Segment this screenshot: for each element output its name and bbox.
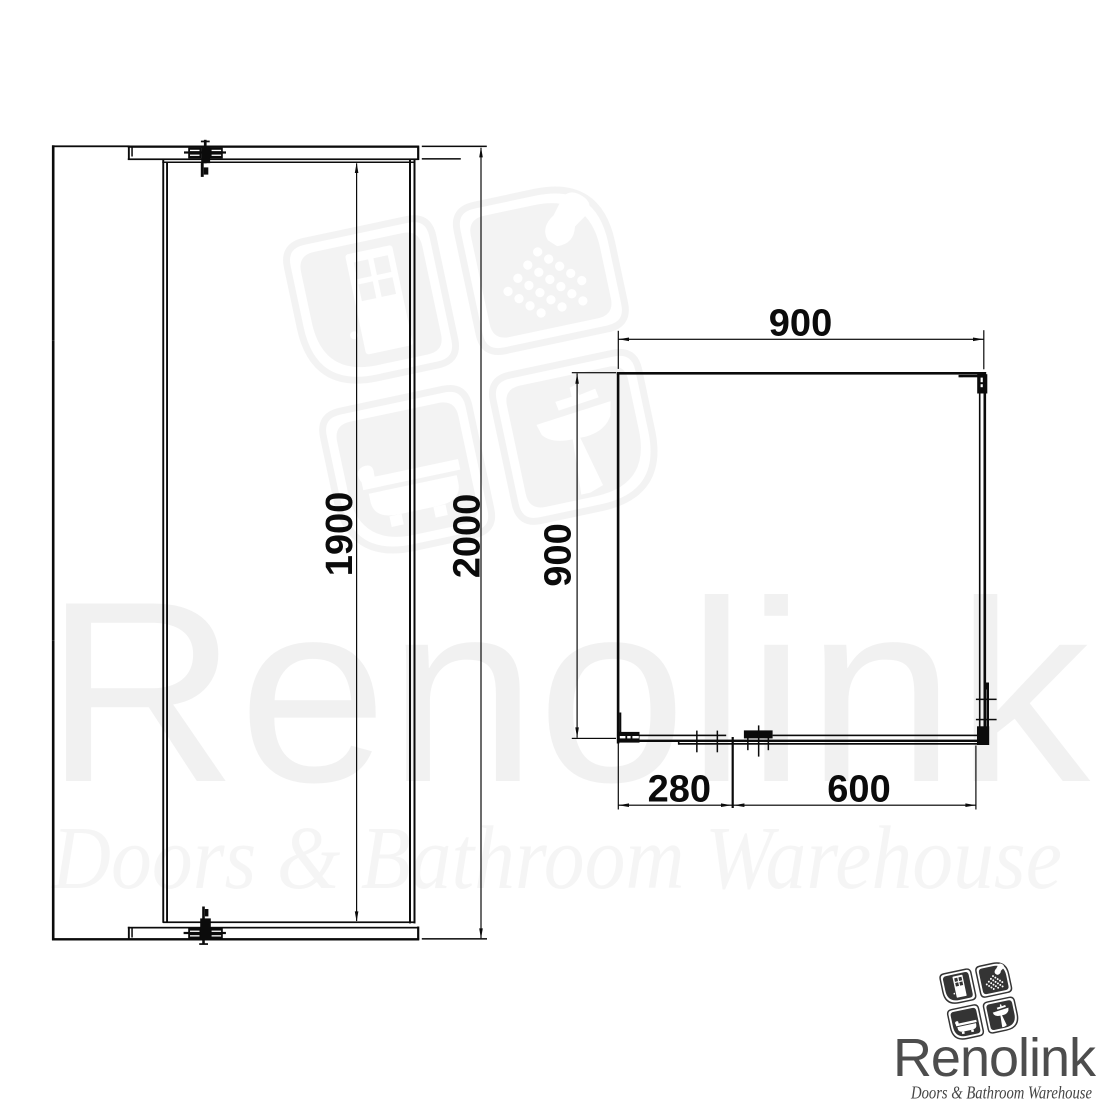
svg-text:Renolink: Renolink <box>893 1028 1097 1088</box>
svg-text:900: 900 <box>769 303 832 345</box>
svg-text:600: 600 <box>827 769 890 811</box>
svg-text:Doors & Bathroom Warehouse: Doors & Bathroom Warehouse <box>50 809 1062 908</box>
svg-text:Renolink: Renolink <box>44 547 1094 836</box>
svg-text:900: 900 <box>538 523 580 586</box>
svg-text:280: 280 <box>648 769 711 811</box>
svg-text:Doors & Bathroom Warehouse: Doors & Bathroom Warehouse <box>910 1083 1092 1100</box>
svg-text:1900: 1900 <box>319 492 361 577</box>
svg-text:2000: 2000 <box>447 494 489 579</box>
